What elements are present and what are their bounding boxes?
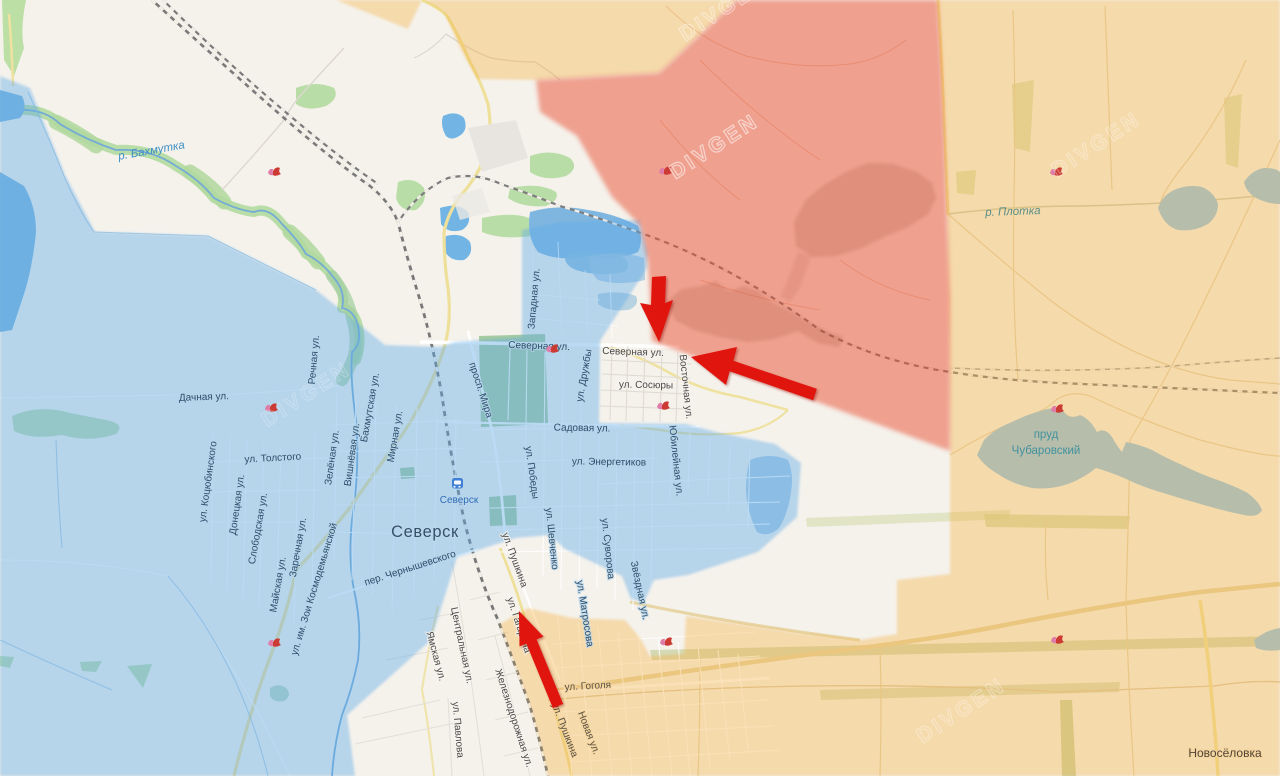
svg-text:ул. Энергетиков: ул. Энергетиков [572,456,646,468]
svg-text:р. Плотка: р. Плотка [984,205,1041,219]
svg-text:Северная ул.: Северная ул. [508,340,570,353]
svg-text:Чубаровский: Чубаровский [1012,445,1081,457]
svg-text:Северск: Северск [391,523,459,541]
svg-text:Северная ул.: Северная ул. [602,346,664,359]
svg-text:Северск: Северск [440,495,479,506]
svg-text:пруд: пруд [1034,429,1059,441]
svg-text:Садовая ул.: Садовая ул. [554,423,611,435]
svg-text:Дачная ул.: Дачная ул. [179,391,229,404]
svg-text:Новосёловка: Новосёловка [1188,746,1262,760]
svg-text:ул. Сосюры: ул. Сосюры [619,380,673,392]
